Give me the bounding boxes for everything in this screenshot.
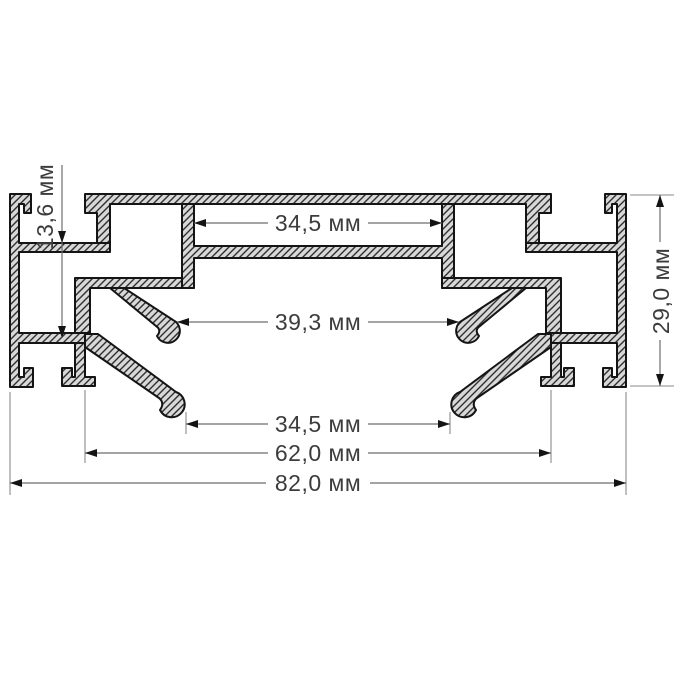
dim-label-flange-tip-span: 34,5 мм — [275, 411, 361, 437]
dimension-top-channel-width: 34,5 мм — [194, 210, 442, 236]
dim-label-overall-height: 29,0 мм — [648, 248, 674, 334]
arrowhead-right — [438, 420, 450, 428]
arrowhead-left — [10, 479, 22, 487]
arrowhead-down — [656, 374, 664, 386]
dim-label-overall-width: 82,0 мм — [275, 470, 361, 496]
dim-label-inner-width: 62,0 мм — [275, 440, 361, 466]
technical-drawing-page: 13,6 мм 34,5 мм 39,3 мм 34,5 мм 62,0 мм — [0, 0, 689, 689]
dim-label-slot-depth: 13,6 мм — [32, 164, 58, 250]
dim-label-hook-span: 39,3 мм — [275, 309, 361, 335]
profile-drawing: 13,6 мм 34,5 мм 39,3 мм 34,5 мм 62,0 мм — [0, 0, 689, 689]
arrowhead-right — [614, 479, 626, 487]
arrowhead-left — [194, 219, 206, 227]
dimension-overall-height: 29,0 мм — [630, 195, 674, 386]
arrowhead-down — [58, 231, 66, 243]
arrowhead-left — [186, 420, 198, 428]
arrowhead-left — [85, 449, 97, 457]
arrowhead-right — [539, 449, 551, 457]
arrowhead-up — [656, 195, 664, 207]
dimension-hook-span: 39,3 мм — [177, 309, 459, 335]
dimension-flange-tip-span: 34,5 мм — [186, 411, 450, 437]
dim-label-top-channel-width: 34,5 мм — [275, 210, 361, 236]
arrowhead-right — [430, 219, 442, 227]
